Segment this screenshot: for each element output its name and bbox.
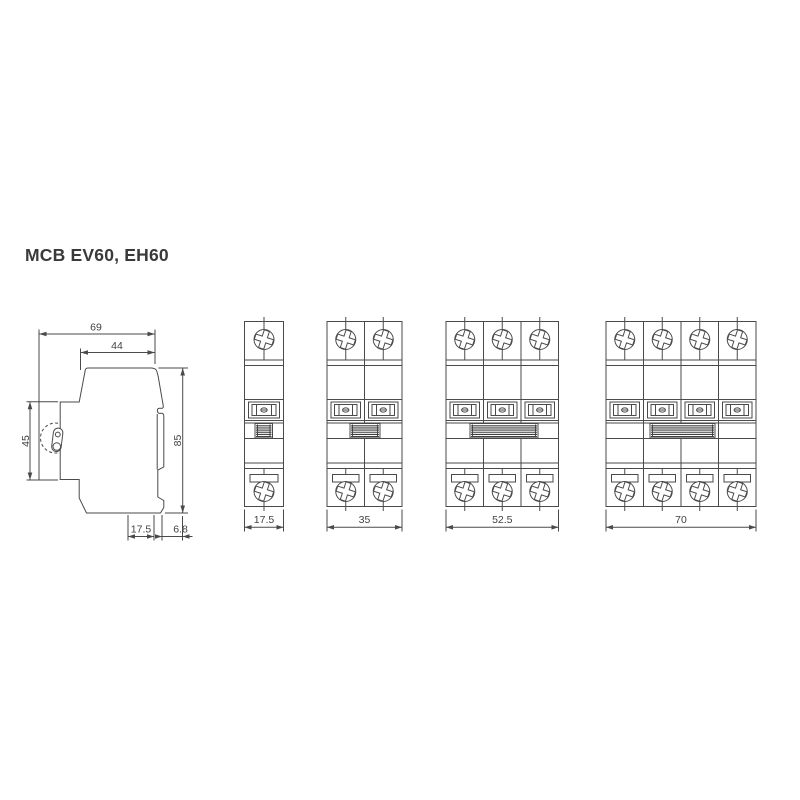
dim-label-width-1pole: 17.5 bbox=[254, 514, 275, 526]
arrowhead bbox=[749, 525, 756, 530]
dim-label-front-height: 45 bbox=[20, 435, 32, 447]
dim-label-width-3pole: 52.5 bbox=[492, 514, 513, 526]
arrowhead bbox=[180, 506, 185, 514]
arrowhead bbox=[148, 332, 156, 337]
arrowhead bbox=[395, 525, 402, 530]
arrowhead bbox=[180, 368, 185, 376]
arrowhead bbox=[606, 525, 613, 530]
marking-window bbox=[452, 475, 479, 483]
breaker-side-profile bbox=[60, 368, 164, 513]
marking-window bbox=[527, 475, 554, 483]
arrowhead bbox=[28, 402, 33, 410]
arrowhead bbox=[81, 350, 89, 355]
arrowhead bbox=[277, 525, 284, 530]
arrowhead bbox=[155, 534, 162, 538]
toggle-lever-tip bbox=[55, 432, 60, 437]
dim-label-overall-depth: 69 bbox=[90, 322, 102, 334]
marking-window bbox=[612, 475, 639, 483]
dim-label-width-2pole: 35 bbox=[359, 514, 371, 526]
front-view-4-pole bbox=[606, 317, 756, 532]
arrowhead bbox=[148, 350, 156, 355]
front-view-2-pole bbox=[327, 317, 402, 532]
dim-label-width-4pole: 70 bbox=[675, 514, 687, 526]
front-views bbox=[245, 317, 757, 532]
marking-window bbox=[649, 475, 676, 483]
arrowhead bbox=[327, 525, 334, 530]
side-view-drawing bbox=[27, 330, 193, 541]
marking-window bbox=[489, 475, 516, 483]
toggle-lever-pivot bbox=[53, 443, 61, 451]
arrowhead bbox=[245, 525, 252, 530]
marking-window bbox=[370, 475, 397, 483]
marking-window bbox=[250, 475, 278, 483]
front-view-3-pole bbox=[446, 317, 559, 532]
technical-drawing: 69 44 45 85 17.5 6.8 17.5 35 52.5 70 bbox=[0, 0, 800, 800]
arrowhead bbox=[28, 473, 33, 481]
marking-window bbox=[687, 475, 714, 483]
dim-label-rail-offset: 6.8 bbox=[173, 524, 188, 536]
marking-window bbox=[724, 475, 751, 483]
marking-window bbox=[333, 475, 360, 483]
arrowhead bbox=[446, 525, 453, 530]
dim-label-front-depth: 44 bbox=[111, 340, 123, 352]
front-view-1-pole bbox=[245, 317, 284, 532]
dim-label-overall-height: 85 bbox=[172, 435, 184, 447]
arrowhead bbox=[39, 332, 47, 337]
arrowhead bbox=[552, 525, 559, 530]
dim-label-bottom-width: 17.5 bbox=[131, 524, 152, 536]
